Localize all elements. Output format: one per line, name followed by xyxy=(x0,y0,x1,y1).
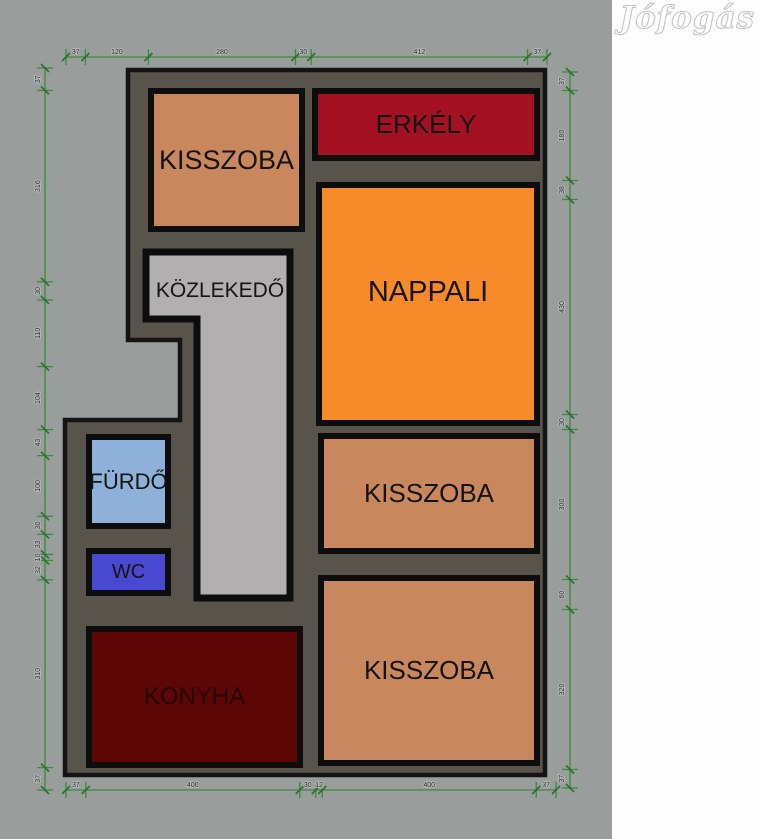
dimension-lines-layer: 3712028030412373740030124003737316301101… xyxy=(0,0,761,839)
svg-text:280: 280 xyxy=(216,49,228,56)
svg-text:300: 300 xyxy=(559,499,566,511)
svg-text:104: 104 xyxy=(35,392,42,404)
svg-text:37: 37 xyxy=(35,75,42,83)
svg-text:37: 37 xyxy=(559,775,566,783)
svg-text:33: 33 xyxy=(35,540,42,548)
jofogas-watermark: Jófogás xyxy=(619,0,755,36)
svg-text:412: 412 xyxy=(414,49,426,56)
svg-text:43: 43 xyxy=(35,439,42,447)
svg-text:30: 30 xyxy=(35,287,42,295)
svg-text:30: 30 xyxy=(35,521,42,529)
svg-text:30: 30 xyxy=(559,418,566,426)
svg-text:38: 38 xyxy=(559,186,566,194)
svg-text:37: 37 xyxy=(72,49,80,56)
svg-text:32: 32 xyxy=(35,566,42,574)
svg-text:37: 37 xyxy=(35,775,42,783)
svg-text:37: 37 xyxy=(72,782,80,789)
svg-text:10: 10 xyxy=(35,553,42,561)
svg-text:37: 37 xyxy=(542,782,550,789)
svg-text:400: 400 xyxy=(423,782,435,789)
svg-text:120: 120 xyxy=(111,49,123,56)
svg-text:37: 37 xyxy=(533,49,541,56)
svg-text:30: 30 xyxy=(299,49,307,56)
svg-text:400: 400 xyxy=(187,782,199,789)
svg-text:180: 180 xyxy=(559,130,566,142)
svg-text:12: 12 xyxy=(315,782,323,789)
svg-text:316: 316 xyxy=(35,180,42,192)
svg-text:100: 100 xyxy=(35,480,42,492)
svg-text:430: 430 xyxy=(559,301,566,313)
floor-plan-image: Jófogás KISSZOBA ERKÉLY NAPPALI KISSZOBA… xyxy=(0,0,761,839)
svg-text:37: 37 xyxy=(559,77,566,85)
svg-text:30: 30 xyxy=(304,782,312,789)
svg-text:310: 310 xyxy=(35,668,42,680)
svg-text:60: 60 xyxy=(559,591,566,599)
svg-text:320: 320 xyxy=(559,684,566,696)
svg-text:110: 110 xyxy=(35,328,42,339)
